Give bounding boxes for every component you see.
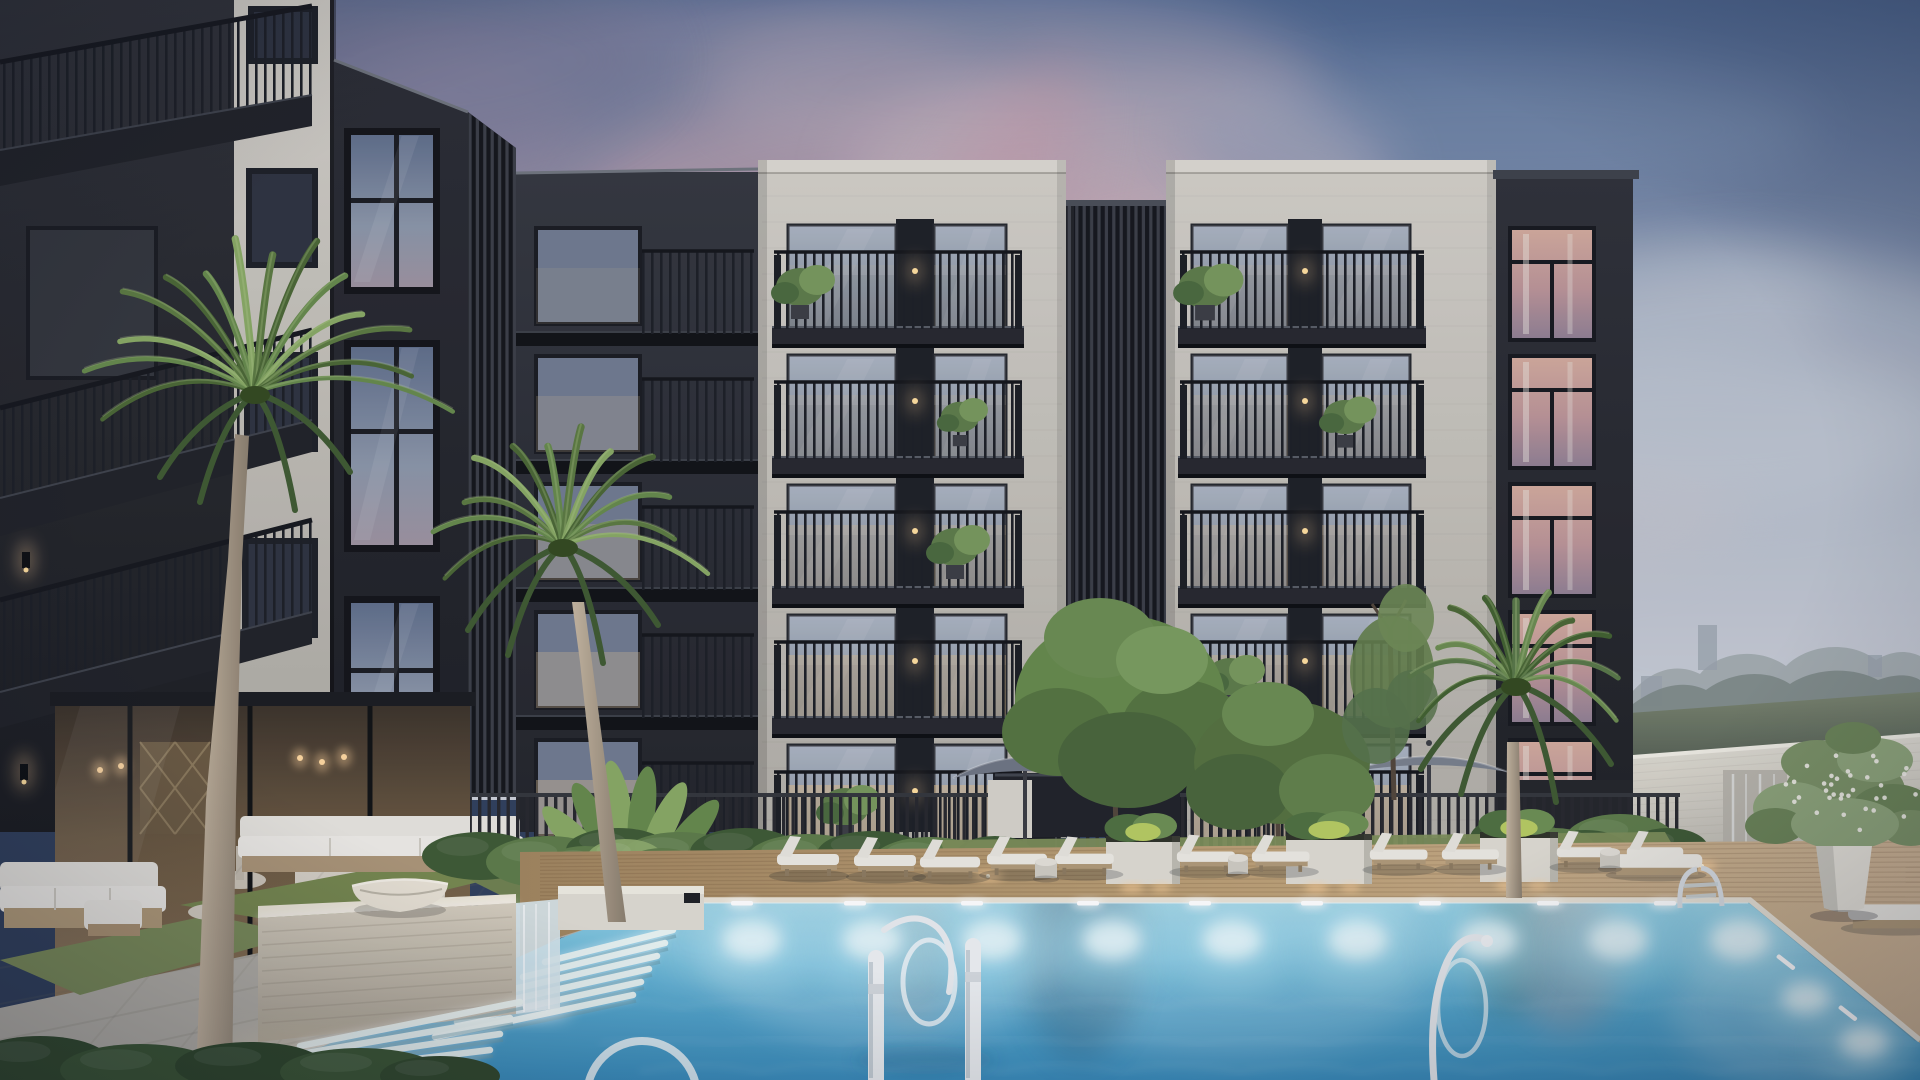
rendering-canvas bbox=[0, 0, 1920, 1080]
vignette bbox=[0, 0, 1920, 1080]
architectural-rendering bbox=[0, 0, 1920, 1080]
